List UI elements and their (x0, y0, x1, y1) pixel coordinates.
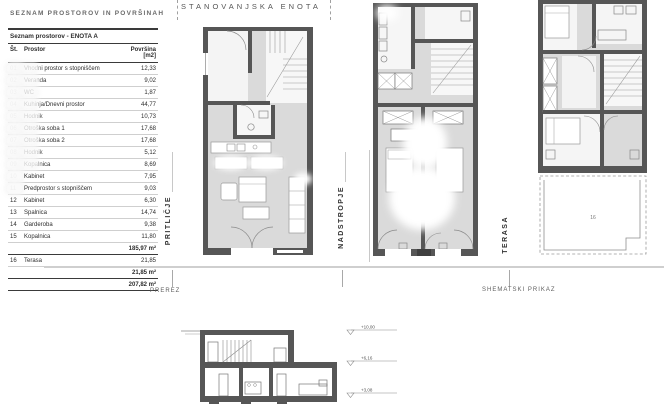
row-name: Kopalnica (24, 162, 120, 168)
floor-plan-upper (373, 3, 478, 256)
level-mark: +3,08 (361, 388, 373, 393)
row-name: Kuhinja/Dnevni prostor (24, 102, 120, 108)
table-row: 15Kopalnica11,80 (8, 231, 158, 243)
row-area: 17,68 (120, 138, 156, 144)
floor-label-terrace: TERASA (502, 216, 509, 254)
table-row: 13Spalnica14,74 (8, 207, 158, 219)
table-row: 05Hodnik10,73 (8, 111, 158, 123)
total-area: 207,82 m² (8, 279, 158, 291)
floor-label-upper: NADSTROPJE (338, 186, 345, 249)
drawing-sheet: SEZNAM PROSTOROV IN POVRŠINAH Seznam pro… (0, 0, 672, 404)
table-row: 01Vhodni prostor s stopniščem12,33 (8, 63, 158, 75)
table-title: Seznam prostorov - ENOTA A (8, 28, 158, 44)
row-name: Kabinet (24, 198, 120, 204)
floor-label-ground: PRITLIČJE (165, 196, 172, 245)
row-area: 44,77 (120, 102, 156, 108)
leader-line (369, 150, 370, 262)
row-name: Predprostor s stopniščem (24, 186, 120, 192)
row-num: 11 (10, 186, 24, 192)
col-area: Površina [m2] (120, 47, 156, 59)
row-area: 9,38 (120, 222, 156, 228)
table-row: 09Kopalnica8,69 (8, 159, 158, 171)
caption-tick (342, 270, 343, 287)
table-row: 14Garderoba9,38 (8, 219, 158, 231)
leader-line (172, 152, 173, 192)
row-area: 8,69 (120, 162, 156, 168)
floor-plan-top (538, 0, 647, 173)
row-area: 6,30 (120, 198, 156, 204)
row-area: 12,33 (120, 66, 156, 72)
section-caption: PREREZ (150, 288, 180, 294)
row-area: 5,12 (120, 150, 156, 156)
row-num: 15 (10, 234, 24, 240)
row-num: 16 (10, 258, 24, 264)
row-name: Hodnik (24, 114, 120, 120)
subtotal-interior: 185,97 m² (8, 243, 158, 255)
row-name: Otroška soba 1 (24, 126, 120, 132)
row-area: 9,03 (120, 186, 156, 192)
col-name: Prostor (24, 47, 120, 59)
row-name: Spalnica (24, 210, 120, 216)
row-name: Kopalnica (24, 234, 120, 240)
table-header: Št. Prostor Površina [m2] (8, 44, 158, 63)
row-name: Veranda (24, 78, 120, 84)
row-area: 14,74 (120, 210, 156, 216)
sheet-title: SEZNAM PROSTOROV IN POVRŠINAH (10, 10, 164, 17)
grid-tick (177, 0, 178, 20)
caption-tick (172, 270, 173, 287)
table-row: 02Veranda9,02 (8, 75, 158, 87)
terrace-outline: 16 (538, 174, 650, 258)
row-area: 11,80 (120, 234, 156, 240)
table-row: 08Hodnik5,12 (8, 147, 158, 159)
caption-tick (509, 270, 510, 287)
row-name: Kabinet (24, 174, 120, 180)
row-num: 12 (10, 198, 24, 204)
row-name: WC (24, 90, 120, 96)
row-name: Terasa (24, 258, 120, 264)
row-name: Vhodni prostor s stopniščem (24, 66, 120, 72)
row-num: 14 (10, 222, 24, 228)
grid-tick (330, 0, 331, 20)
row-area: 9,02 (120, 78, 156, 84)
floor-plan-ground (203, 27, 313, 255)
subtotal-terrace: 21,85 m² (8, 267, 158, 279)
row-area: 21,85 (120, 258, 156, 264)
row-area: 10,73 (120, 114, 156, 120)
row-area: 7,95 (120, 174, 156, 180)
table-row: 03WC1,87 (8, 87, 158, 99)
terrace-number: 16 (590, 215, 596, 221)
level-mark: +10,00 (361, 325, 375, 330)
divider-rule (44, 266, 664, 268)
room-table: Seznam prostorov - ENOTA A Št. Prostor P… (8, 28, 158, 291)
unit-label: STANOVANJSKA ENOTA (181, 2, 321, 11)
table-row: 10Kabinet7,95 (8, 171, 158, 183)
row-num: 13 (10, 210, 24, 216)
row-name: Garderoba (24, 222, 120, 228)
level-mark: +6,16 (361, 356, 373, 361)
table-row: 04Kuhinja/Dnevni prostor44,77 (8, 99, 158, 111)
section-drawing: +10,00 +6,16 +3,08 (181, 318, 400, 404)
table-row: 07Otroška soba 217,68 (8, 135, 158, 147)
row-name: Otroška soba 2 (24, 138, 120, 144)
table-row: 06Otroška soba 117,68 (8, 123, 158, 135)
row-area: 1,87 (120, 90, 156, 96)
table-row: 12Kabinet6,30 (8, 195, 158, 207)
table-row: 11Predprostor s stopniščem9,03 (8, 183, 158, 195)
schematic-caption: SHEMATSKI PRIKAZ (482, 287, 556, 293)
leader-line (345, 152, 346, 182)
row-name: Hodnik (24, 150, 120, 156)
row-num: 10 (10, 174, 24, 180)
col-num: Št. (10, 47, 24, 59)
row-area: 17,68 (120, 126, 156, 132)
